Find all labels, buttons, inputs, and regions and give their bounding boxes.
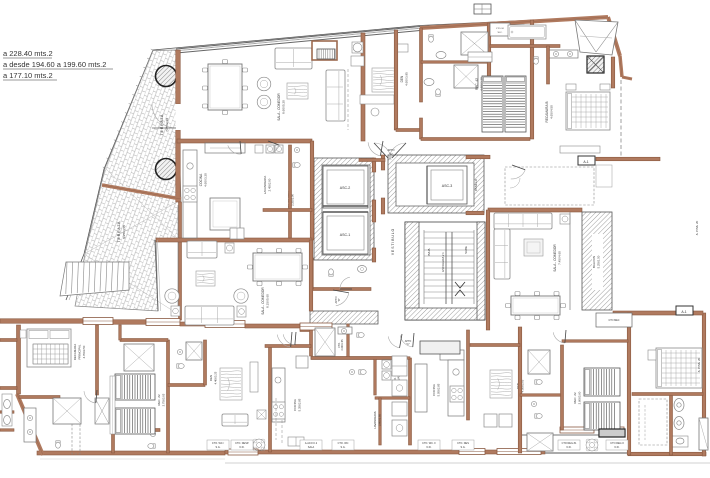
svg-text:A.ACO K.2: A.ACO K.2 bbox=[305, 442, 318, 445]
svg-text:REC. #2: REC. #2 bbox=[573, 392, 577, 404]
svg-text:5.35X2.85: 5.35X2.85 bbox=[298, 398, 302, 411]
svg-text:T E R R A Z A: T E R R A Z A bbox=[117, 221, 121, 243]
svg-text:4.60X3.20: 4.60X3.20 bbox=[204, 173, 208, 187]
svg-text:"A": "A" bbox=[389, 152, 393, 156]
svg-text:8.35X4.55: 8.35X4.55 bbox=[122, 225, 126, 239]
svg-text:7.45X4.60: 7.45X4.60 bbox=[558, 251, 562, 265]
svg-text:W.C.: W.C. bbox=[498, 32, 503, 34]
svg-text:A-1: A-1 bbox=[681, 310, 686, 314]
svg-text:N.D.: N.D. bbox=[615, 446, 620, 449]
svg-text:RECAMARA: RECAMARA bbox=[73, 344, 77, 360]
svg-text:V E S T I B U L O: V E S T I B U L O bbox=[391, 228, 395, 255]
svg-text:4.60X3.30: 4.60X3.30 bbox=[480, 77, 484, 91]
svg-text:ASC-2: ASC-2 bbox=[340, 186, 351, 190]
svg-text:SALA: SALA bbox=[308, 446, 315, 449]
svg-text:SALA - COMEDOR: SALA - COMEDOR bbox=[261, 287, 265, 315]
svg-text:N.D.: N.D. bbox=[427, 446, 432, 449]
svg-text:BALCON: BALCON bbox=[592, 256, 596, 268]
svg-text:ESCALERA # 1: ESCALERA # 1 bbox=[441, 252, 445, 272]
svg-text:7.45X2.90: 7.45X2.90 bbox=[165, 118, 169, 132]
svg-text:2.45X2.00: 2.45X2.00 bbox=[268, 178, 272, 191]
svg-text:5.25X1.50: 5.25X1.50 bbox=[597, 255, 601, 268]
svg-text:8.15X5.60: 8.15X5.60 bbox=[266, 294, 270, 308]
svg-text:LAVANDERIA: LAVANDERIA bbox=[373, 411, 377, 428]
svg-text:DEN: DEN bbox=[209, 375, 213, 381]
svg-text:BAJA: BAJA bbox=[427, 248, 431, 255]
svg-text:SALA - COMEDOR: SALA - COMEDOR bbox=[553, 244, 557, 272]
svg-text:COCINA: COCINA bbox=[432, 384, 436, 396]
svg-text:SALA - COMEDOR: SALA - COMEDOR bbox=[277, 93, 281, 121]
svg-text:2.00X1.95: 2.00X1.95 bbox=[341, 339, 344, 351]
svg-text:CTO. WC /: CTO. WC / bbox=[212, 442, 224, 445]
svg-text:"C": "C" bbox=[406, 343, 410, 346]
svg-text:REC. #2: REC. #2 bbox=[157, 394, 161, 406]
svg-text:DEN: DEN bbox=[400, 75, 404, 82]
svg-text:4.65X4.50: 4.65X4.50 bbox=[550, 105, 554, 119]
svg-text:A-1: A-1 bbox=[583, 160, 588, 164]
svg-text:2.60X1.95: 2.60X1.95 bbox=[378, 414, 382, 426]
svg-text:COCINA: COCINA bbox=[199, 173, 203, 186]
svg-text:ASC-3: ASC-3 bbox=[442, 184, 453, 188]
svg-text:CTO REG #: CTO REG # bbox=[610, 442, 624, 445]
svg-text:APTO: APTO bbox=[387, 148, 394, 152]
svg-text:N.D.: N.D. bbox=[567, 446, 572, 449]
svg-text:8.60X5.20: 8.60X5.20 bbox=[282, 100, 286, 114]
svg-text:RECAMARA B: RECAMARA B bbox=[545, 102, 549, 123]
svg-text:CTO REG #1: CTO REG #1 bbox=[562, 442, 577, 445]
svg-text:4.60X3.95: 4.60X3.95 bbox=[405, 72, 409, 86]
svg-text:PASILLO: PASILLO bbox=[474, 178, 478, 191]
svg-text:PRINCIPAL: PRINCIPAL bbox=[78, 344, 82, 359]
svg-text:3.75X3.05: 3.75X3.05 bbox=[162, 393, 166, 406]
svg-text:CTO. M.: CTO. M. bbox=[496, 28, 505, 30]
svg-text:a 177.10 mts.2: a 177.10 mts.2 bbox=[3, 71, 53, 80]
svg-text:ASC-1: ASC-1 bbox=[340, 233, 351, 237]
svg-text:S.G.: S.G. bbox=[340, 446, 345, 449]
svg-text:CTO. DES: CTO. DES bbox=[457, 442, 469, 445]
svg-text:S.G.: S.G. bbox=[460, 446, 465, 449]
svg-text:LAVANDERIA: LAVANDERIA bbox=[263, 176, 267, 195]
svg-text:CTO. WC. F: CTO. WC. F bbox=[422, 442, 436, 445]
svg-text:CTO. DESP.: CTO. DESP. bbox=[235, 442, 249, 445]
svg-text:4.40X3.25: 4.40X3.25 bbox=[214, 371, 218, 384]
svg-text:CTO. WC: CTO. WC bbox=[338, 442, 349, 445]
svg-text:N.D.: N.D. bbox=[240, 446, 245, 449]
svg-text:S.G.: S.G. bbox=[215, 446, 220, 449]
svg-text:A. PISA. 20: A. PISA. 20 bbox=[697, 357, 701, 372]
svg-text:CTO MEC: CTO MEC bbox=[609, 319, 620, 322]
svg-text:4.70X3.50: 4.70X3.50 bbox=[82, 345, 86, 358]
svg-text:REC. #2: REC. #2 bbox=[475, 78, 479, 90]
svg-text:SUBE: SUBE bbox=[464, 246, 468, 254]
svg-text:COCINA: COCINA bbox=[293, 399, 297, 411]
svg-text:A. PISA. 20: A. PISA. 20 bbox=[695, 220, 699, 235]
svg-text:a desde 194.60 a 199.60 mts: a desde 194.60 a 199.60 mts.2 bbox=[3, 60, 106, 69]
svg-text:5.05X2.85: 5.05X2.85 bbox=[437, 383, 441, 396]
svg-text:"B": "B" bbox=[337, 298, 341, 302]
svg-text:3.60X3.60: 3.60X3.60 bbox=[578, 391, 582, 404]
svg-text:a 228.40 mts.2: a 228.40 mts.2 bbox=[3, 49, 53, 58]
